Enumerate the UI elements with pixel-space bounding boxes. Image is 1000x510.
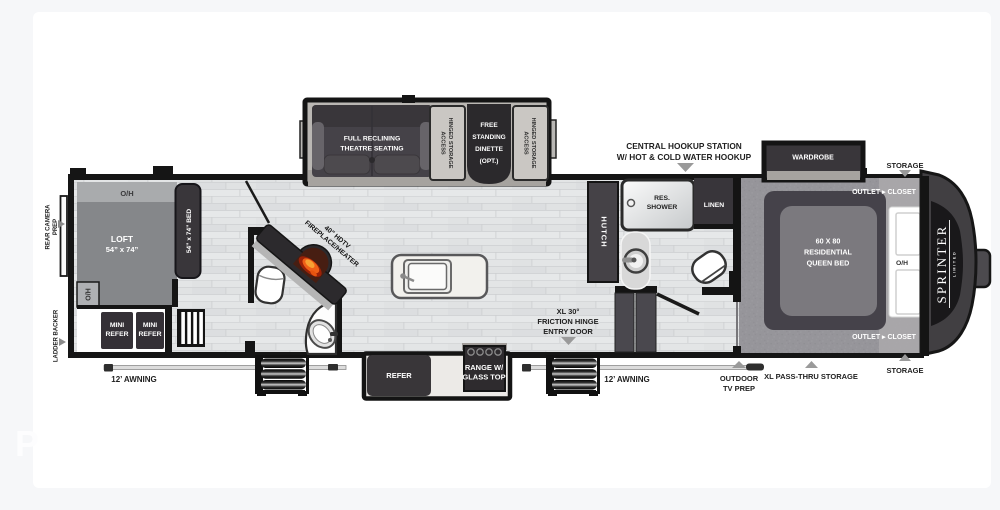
svg-text:FULL RECLINING: FULL RECLINING bbox=[344, 136, 401, 143]
svg-text:STANDING: STANDING bbox=[472, 134, 505, 141]
svg-text:LIMITED: LIMITED bbox=[952, 251, 957, 278]
svg-text:12’ AWNING: 12’ AWNING bbox=[604, 375, 650, 384]
svg-text:RESIDENTIAL: RESIDENTIAL bbox=[804, 248, 853, 257]
svg-text:12’ AWNING: 12’ AWNING bbox=[111, 375, 157, 384]
svg-text:RES.: RES. bbox=[654, 195, 670, 202]
svg-text:REFER: REFER bbox=[105, 331, 128, 338]
svg-text:ACCESS: ACCESS bbox=[440, 131, 446, 155]
svg-text:LADDER BACKER: LADDER BACKER bbox=[54, 309, 60, 362]
svg-text:HUTCH: HUTCH bbox=[600, 216, 609, 247]
svg-text:SHOWER: SHOWER bbox=[647, 204, 678, 211]
svg-text:RANGE W/: RANGE W/ bbox=[465, 363, 504, 372]
svg-text:54” x 74” BED: 54” x 74” BED bbox=[186, 209, 193, 254]
svg-text:HINGED STORAGE: HINGED STORAGE bbox=[447, 118, 453, 169]
svg-text:MINI: MINI bbox=[110, 322, 124, 329]
svg-text:REFER: REFER bbox=[386, 371, 412, 380]
svg-text:OUTLET ▸ CLOSET: OUTLET ▸ CLOSET bbox=[852, 334, 917, 341]
svg-text:HINGED STORAGE: HINGED STORAGE bbox=[530, 118, 536, 169]
svg-text:FRICTION HINGE: FRICTION HINGE bbox=[537, 317, 598, 326]
svg-text:REAR CAMERA: REAR CAMERA bbox=[46, 204, 52, 250]
svg-text:DINETTE: DINETTE bbox=[475, 146, 503, 153]
svg-text:FREE: FREE bbox=[480, 122, 498, 129]
svg-text:ACCESS: ACCESS bbox=[523, 131, 529, 155]
svg-text:XL 30°: XL 30° bbox=[557, 307, 580, 316]
svg-text:LINEN: LINEN bbox=[704, 202, 724, 209]
svg-text:W/ HOT & COLD WATER HOOKUP: W/ HOT & COLD WATER HOOKUP bbox=[617, 152, 752, 162]
svg-text:STORAGE: STORAGE bbox=[887, 366, 924, 375]
svg-text:LOFT: LOFT bbox=[111, 234, 134, 244]
svg-text:REFER: REFER bbox=[138, 331, 161, 338]
svg-text:60 X 80: 60 X 80 bbox=[816, 237, 841, 246]
svg-text:(OPT.): (OPT.) bbox=[480, 158, 499, 165]
svg-text:QUEEN BED: QUEEN BED bbox=[807, 259, 850, 268]
svg-text:THEATRE SEATING: THEATRE SEATING bbox=[340, 146, 403, 153]
svg-text:STORAGE: STORAGE bbox=[887, 161, 924, 170]
svg-text:P: P bbox=[15, 423, 39, 464]
svg-text:SPRINTER: SPRINTER bbox=[934, 224, 949, 303]
svg-text:XL PASS-THRU STORAGE: XL PASS-THRU STORAGE bbox=[764, 372, 858, 381]
svg-text:GLASS TOP: GLASS TOP bbox=[462, 373, 505, 382]
svg-text:O/H: O/H bbox=[120, 189, 133, 198]
svg-text:TV PREP: TV PREP bbox=[723, 384, 755, 393]
svg-text:OUTDOOR: OUTDOOR bbox=[720, 374, 759, 383]
svg-text:WARDROBE: WARDROBE bbox=[792, 155, 834, 162]
svg-text:O/H: O/H bbox=[896, 260, 908, 267]
svg-text:O/H: O/H bbox=[86, 288, 93, 300]
svg-text:MINI: MINI bbox=[143, 322, 157, 329]
svg-text:54” x 74”: 54” x 74” bbox=[106, 245, 139, 254]
svg-text:OUTLET ▸ CLOSET: OUTLET ▸ CLOSET bbox=[852, 189, 917, 196]
svg-text:CENTRAL HOOKUP STATION: CENTRAL HOOKUP STATION bbox=[626, 141, 742, 151]
svg-text:ENTRY DOOR: ENTRY DOOR bbox=[543, 327, 593, 336]
